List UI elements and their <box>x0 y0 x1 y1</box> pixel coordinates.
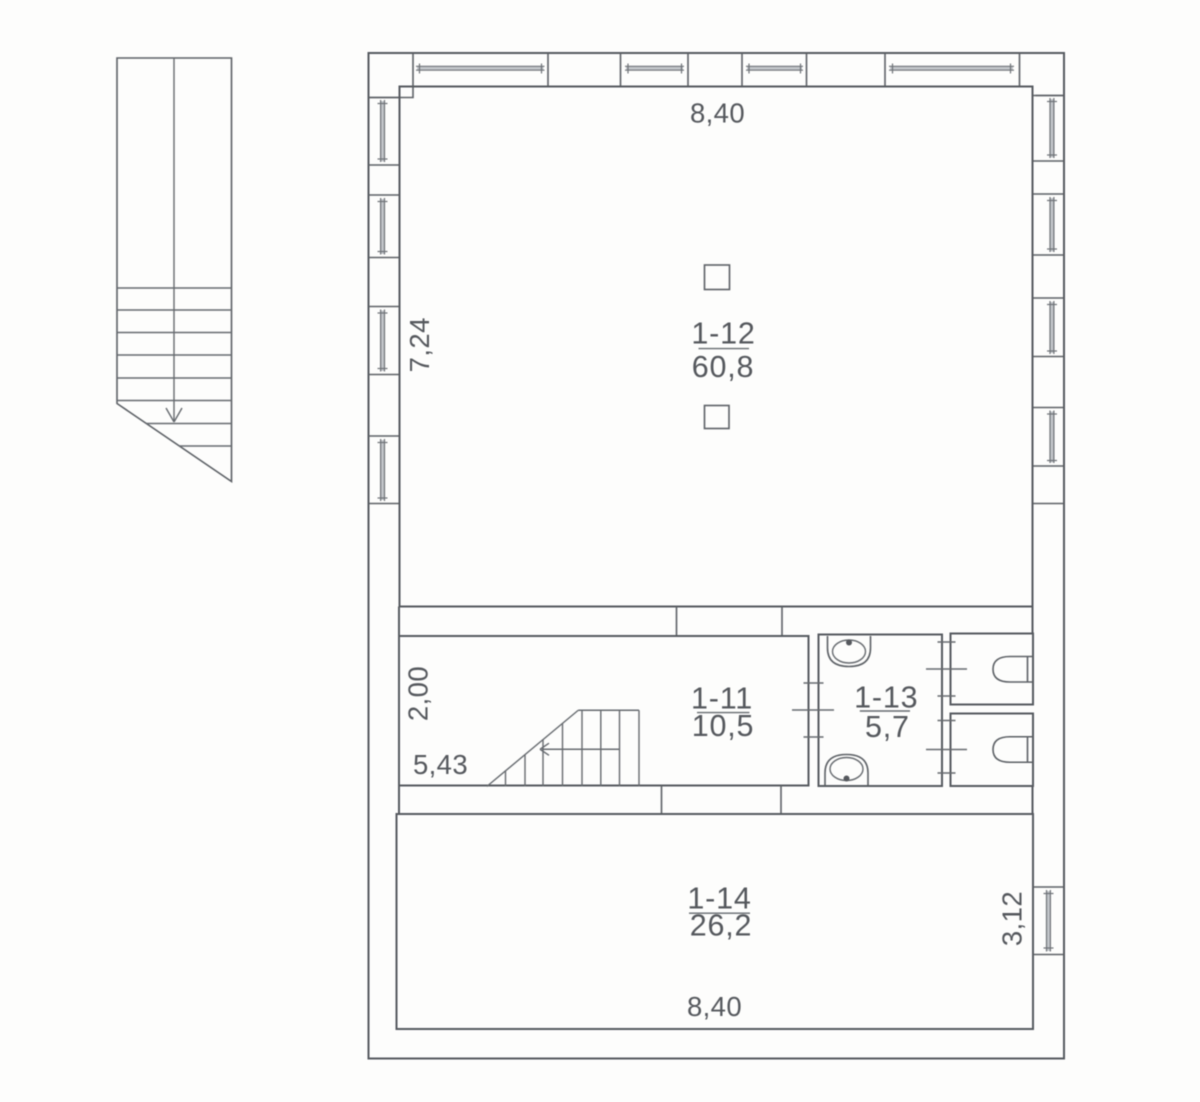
svg-text:3,12: 3,12 <box>997 891 1028 946</box>
svg-text:8,40: 8,40 <box>687 991 742 1022</box>
svg-text:1-12: 1-12 <box>691 317 755 351</box>
svg-text:2,00: 2,00 <box>403 666 434 721</box>
svg-text:8,40: 8,40 <box>690 98 745 129</box>
svg-text:5,43: 5,43 <box>413 749 468 780</box>
svg-text:5,7: 5,7 <box>865 710 910 744</box>
svg-text:10,5: 10,5 <box>692 709 755 743</box>
svg-text:7,24: 7,24 <box>404 317 435 372</box>
svg-text:26,2: 26,2 <box>690 909 753 943</box>
svg-text:60,8: 60,8 <box>692 350 755 384</box>
